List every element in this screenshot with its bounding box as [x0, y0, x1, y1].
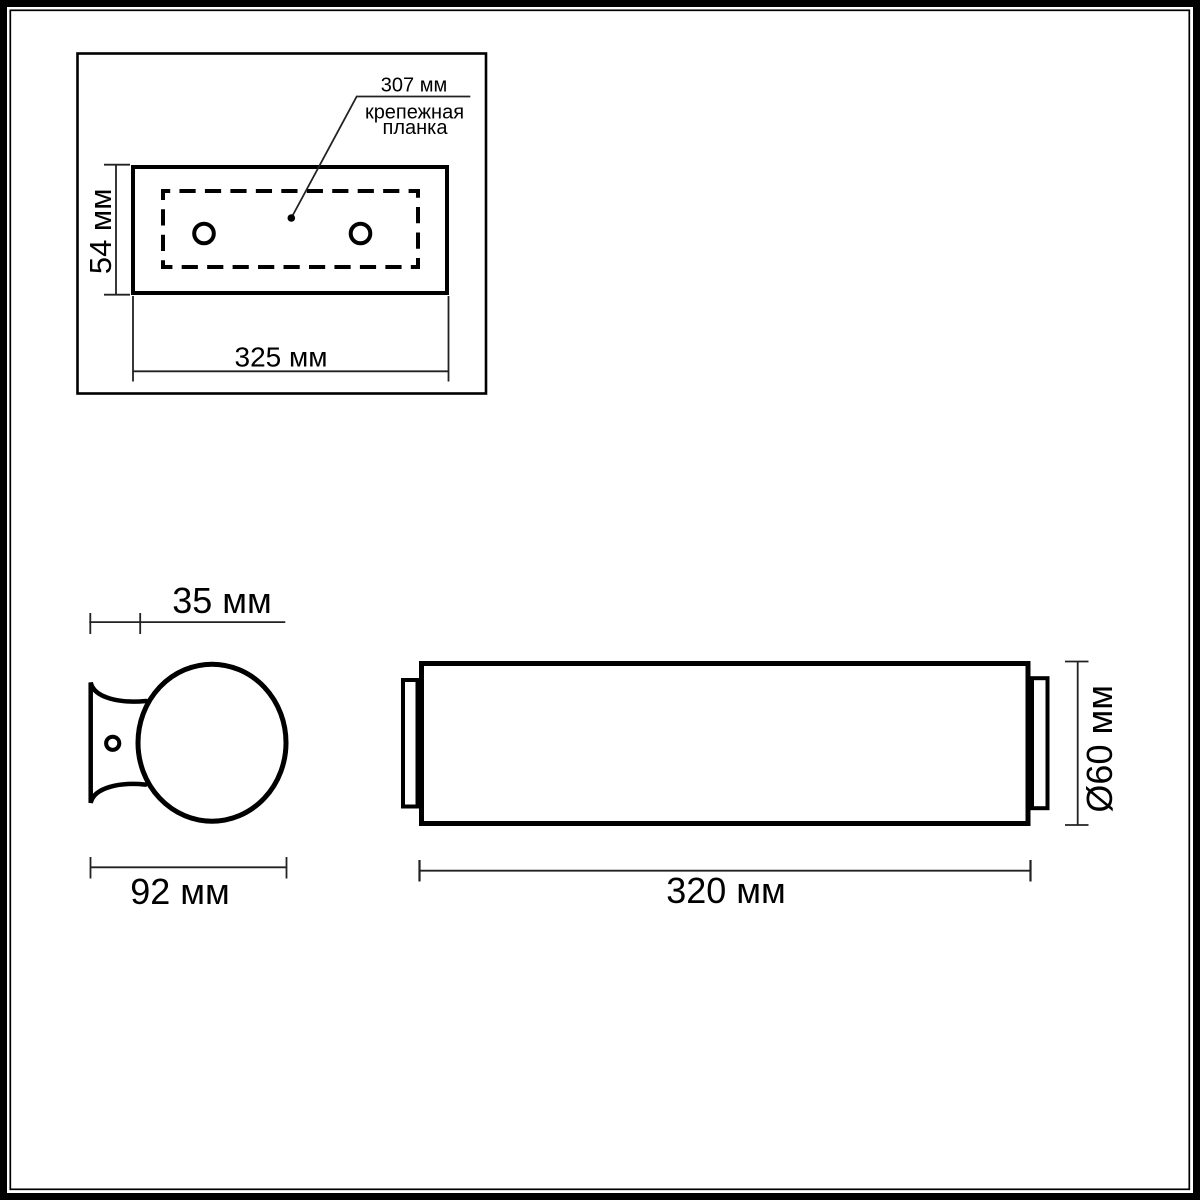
svg-text:планка: планка [383, 117, 449, 139]
svg-text:307 мм: 307 мм [381, 75, 447, 97]
svg-text:320 мм: 320 мм [666, 870, 786, 911]
svg-text:35 мм: 35 мм [172, 580, 272, 621]
svg-text:Ø60 мм: Ø60 мм [1079, 685, 1120, 813]
svg-text:92 мм: 92 мм [130, 871, 230, 912]
svg-text:54 мм: 54 мм [83, 188, 118, 274]
svg-text:325 мм: 325 мм [235, 342, 328, 373]
